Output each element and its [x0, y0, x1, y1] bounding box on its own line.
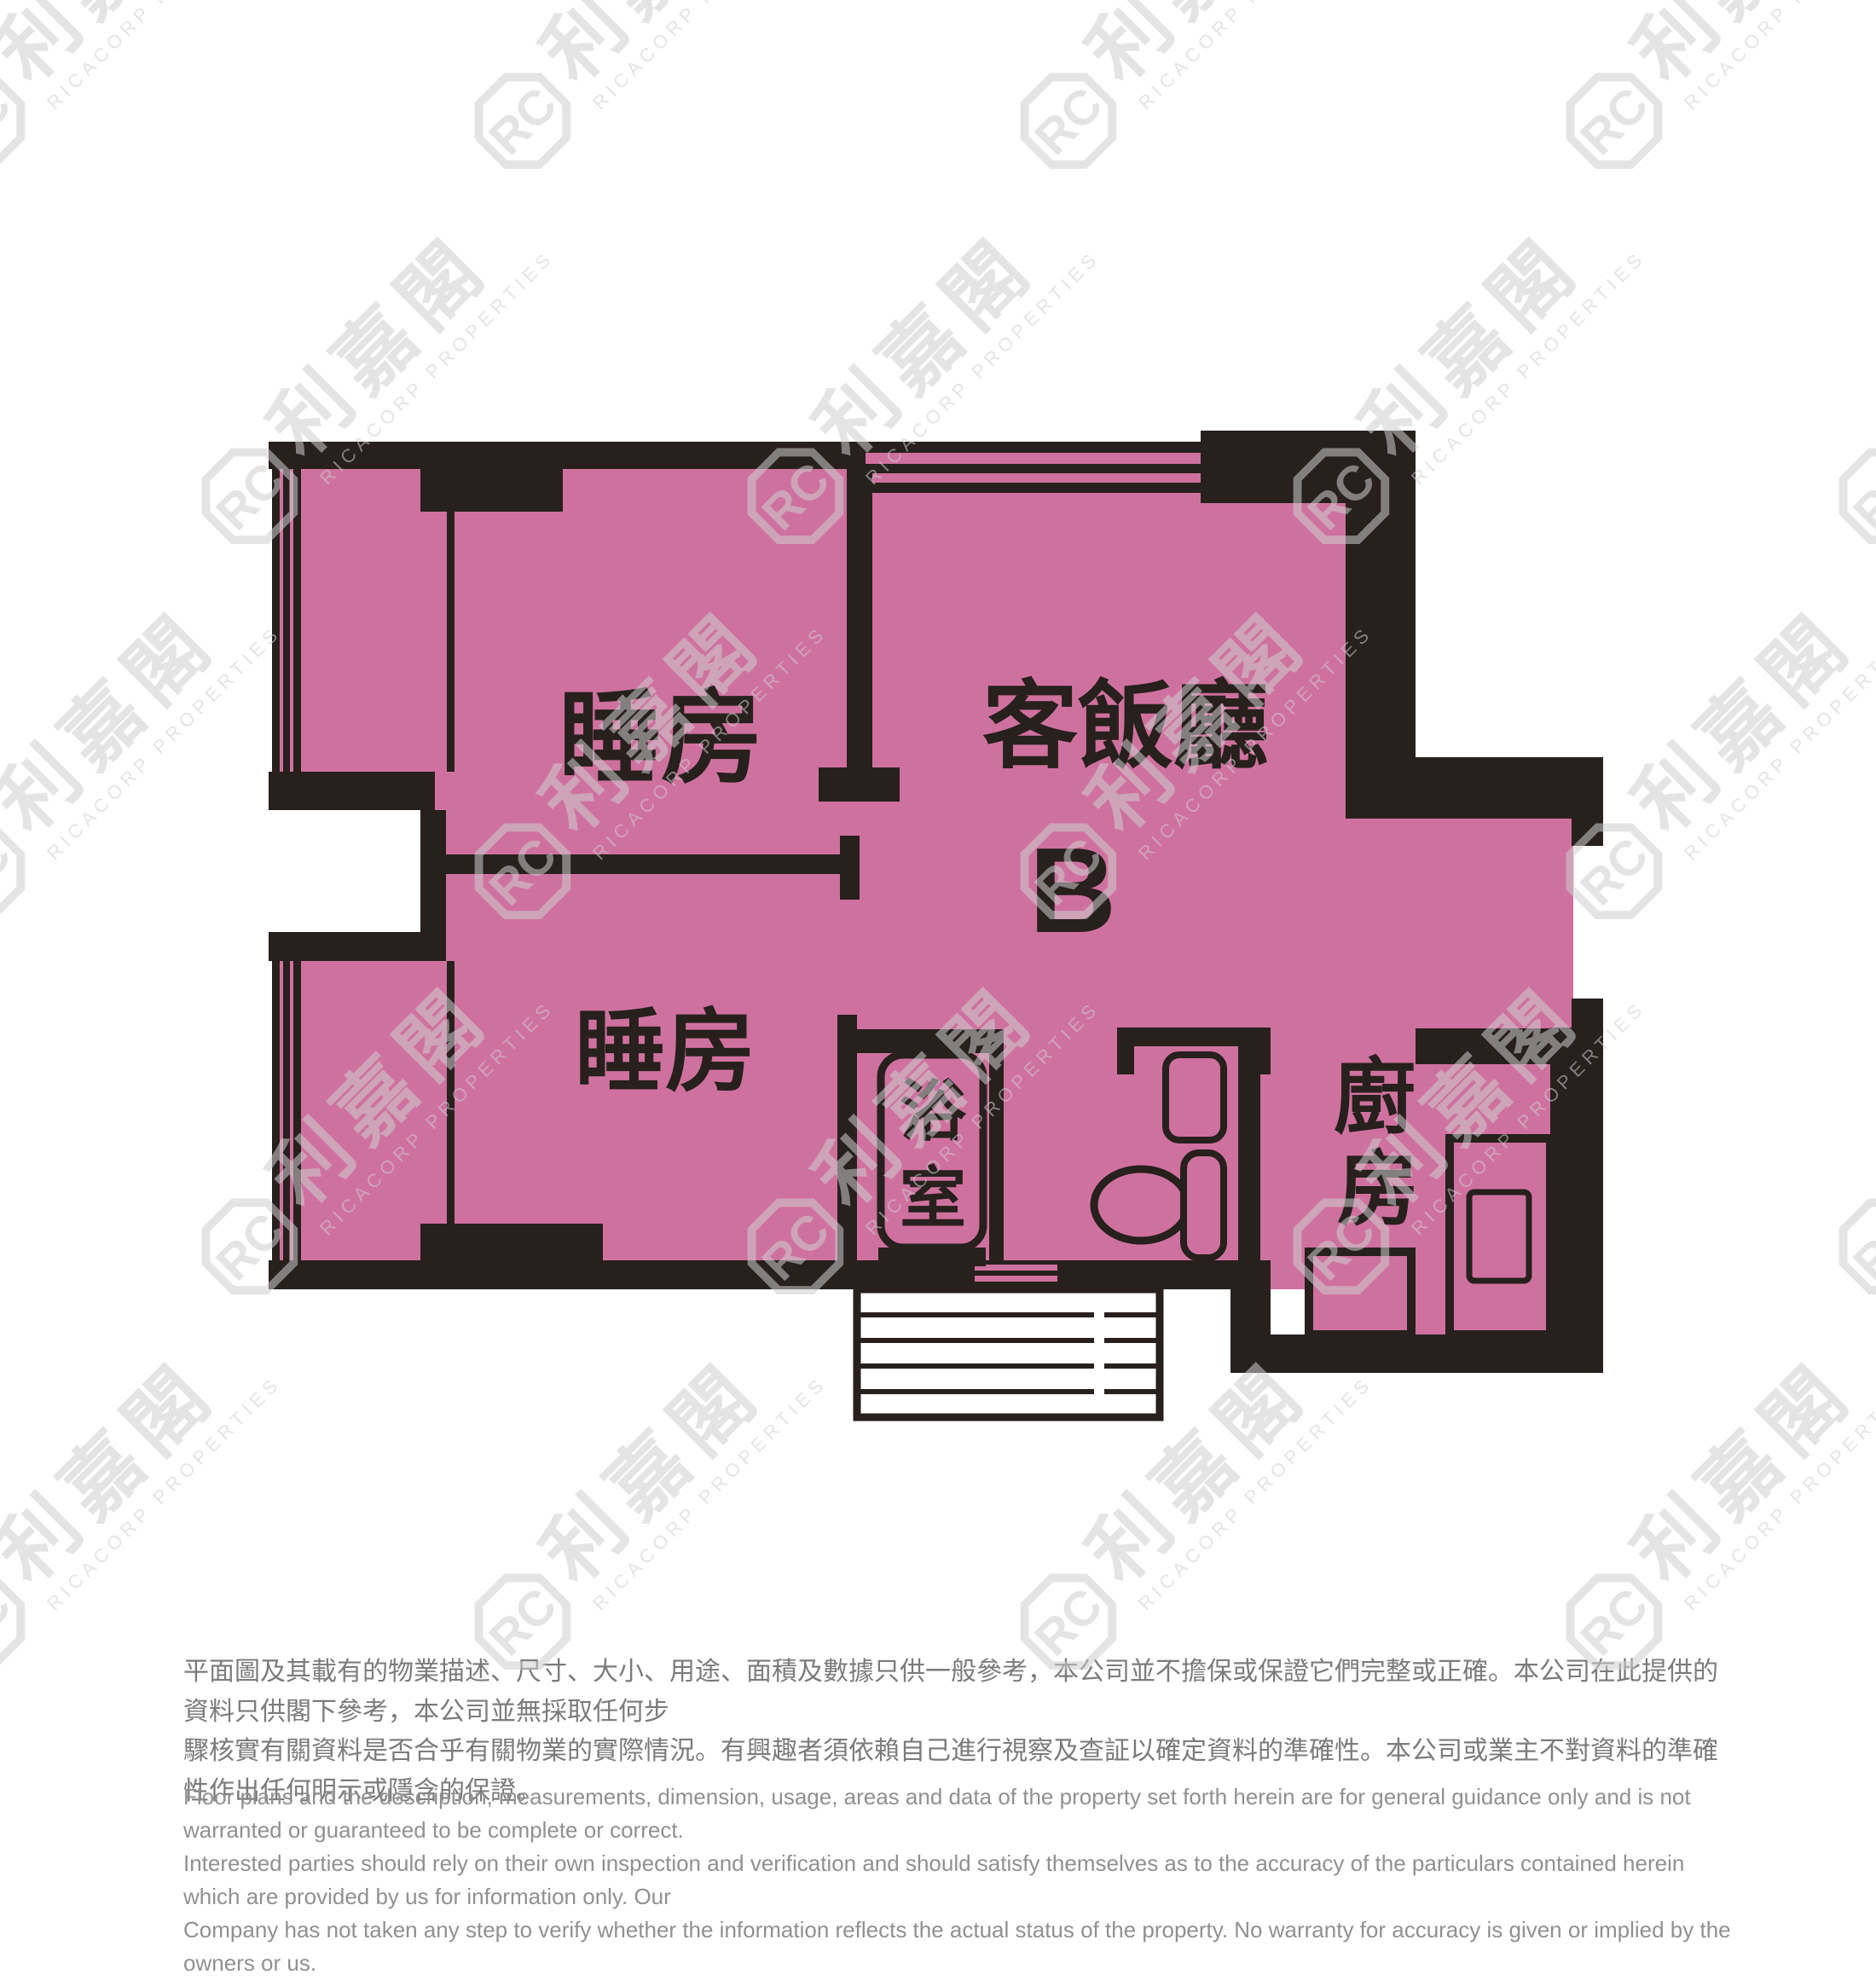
bathtub-base — [878, 1248, 986, 1266]
floor-plan: 睡房 睡房 客飯廳 B 浴 室 廚 房 — [0, 0, 1876, 1876]
wall-bedroom-partition — [431, 854, 840, 874]
washbasin-icon — [1166, 1055, 1224, 1140]
wall-right-bar — [1346, 757, 1603, 819]
wall-bedroom-partition-cap — [840, 836, 860, 900]
stove-icon — [1309, 1252, 1411, 1334]
bedroom2-label: 睡房 — [575, 1002, 756, 1103]
living-window-top — [866, 442, 1202, 493]
kitchen-sink-icon — [1469, 1192, 1529, 1281]
wall-step-top — [1572, 819, 1603, 846]
wall-wc-right — [1238, 1046, 1260, 1260]
wall-bath-left — [837, 1015, 857, 1286]
disclaimer-english-line: Interested parties should rely on their … — [183, 1847, 1731, 1913]
bathroom-label-char2: 室 — [900, 1161, 966, 1236]
wall-notch-bottom — [269, 932, 446, 961]
disclaimer-english-line: Company has not taken any step to verify… — [183, 1913, 1731, 1980]
wall-entry-step — [1230, 1289, 1271, 1334]
living-dining-label: 客飯廳 — [982, 673, 1269, 779]
bedroom2-window — [272, 961, 301, 1260]
stairs — [857, 1289, 1160, 1417]
stairs-divider — [1094, 1296, 1104, 1410]
wall-bed1-right — [847, 469, 872, 767]
wall-bath-right — [989, 1045, 1004, 1260]
wall-bay1-bottom — [269, 772, 435, 810]
bedroom1-window — [272, 469, 301, 772]
floor-plan-page: { "floor_plan": { "unit_label": "B", "ro… — [0, 0, 1876, 1876]
wall-bottom — [269, 1260, 1271, 1289]
unit-label: B — [1029, 823, 1117, 958]
wall-bed1-right-cap — [819, 767, 900, 802]
disclaimer-chinese-line: 平面圖及其載有的物業描述、尺寸、大小、用途、面積及數據只供一般參考，本公司並不擔… — [183, 1653, 1731, 1732]
bathroom-label-char1: 浴 — [900, 1074, 967, 1149]
wall-wc-jamb-left — [1117, 1046, 1134, 1074]
bedroom1-label: 睡房 — [559, 681, 763, 796]
wall-step-bottom — [1572, 999, 1603, 1028]
wall-kitchen-bottom — [1230, 1334, 1603, 1373]
disclaimer-english-line: Floor plans and the description, measure… — [183, 1780, 1731, 1847]
wall-bed2-bay-line — [447, 961, 455, 1224]
wall-bed2-wardrobe — [420, 1224, 603, 1262]
toilet-tank-icon — [1184, 1153, 1224, 1258]
wall-kitchen-right — [1550, 1028, 1603, 1373]
kitchen-label-char2: 房 — [1337, 1144, 1419, 1236]
wall-kitchen-top — [1416, 1028, 1550, 1064]
disclaimer-english: Floor plans and the description, measure… — [183, 1780, 1731, 1980]
wall-right-upper — [1346, 431, 1416, 757]
wall-bed1-bay-line — [447, 512, 455, 772]
wall-bulkhead — [420, 442, 563, 512]
toilet-bowl-icon — [1094, 1169, 1188, 1241]
building-notch — [205, 810, 420, 932]
floor-recess — [1416, 819, 1573, 1028]
wall-wc-top — [1117, 1028, 1271, 1046]
wall-bath-top — [857, 1029, 1004, 1053]
wall-top-left — [269, 442, 866, 469]
kitchen-label-char1: 廚 — [1334, 1052, 1416, 1143]
